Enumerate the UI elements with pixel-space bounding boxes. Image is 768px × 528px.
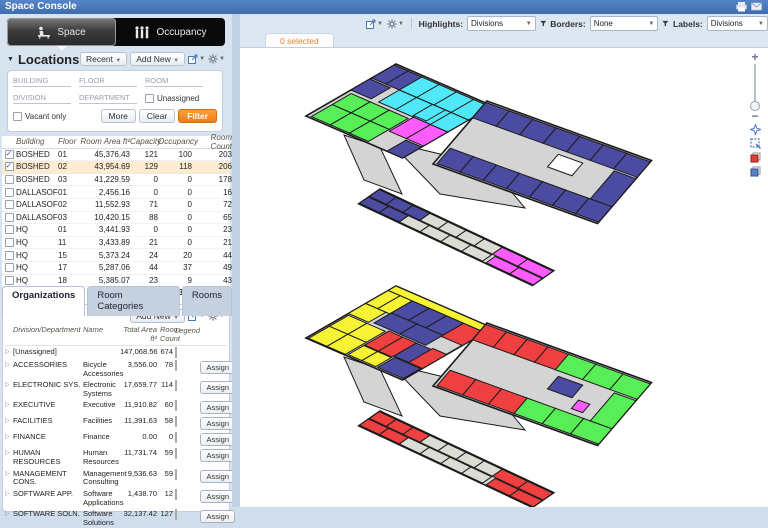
tab-rooms[interactable]: Rooms bbox=[182, 286, 232, 316]
borders-label: Borders: bbox=[550, 19, 585, 29]
collapse-locations-icon[interactable]: ▼ bbox=[7, 56, 14, 63]
location-row[interactable]: BOSHED0341,229.5900178 bbox=[2, 174, 230, 187]
organization-row[interactable]: ▷FACILITIESFacilities11,391.6358Assign bbox=[5, 415, 227, 431]
filter-button[interactable]: Filter bbox=[178, 109, 217, 123]
assign-button[interactable]: Assign bbox=[200, 490, 235, 503]
settings-menu[interactable]: ▼ bbox=[208, 54, 225, 64]
zoom-in-button[interactable]: + bbox=[751, 52, 758, 62]
borders-filter-icon[interactable] bbox=[662, 19, 669, 28]
assign-button[interactable]: Assign bbox=[200, 401, 235, 414]
row-checkbox[interactable] bbox=[5, 263, 14, 272]
row-checkbox[interactable] bbox=[5, 162, 14, 171]
highlights-label: Highlights: bbox=[419, 19, 463, 29]
tab-occupancy[interactable]: Occupancy bbox=[116, 18, 225, 46]
location-row[interactable]: BOSHED0145,376.43121100203 bbox=[2, 149, 230, 162]
tab-organizations[interactable]: Organizations bbox=[2, 286, 85, 316]
labels-label: Labels: bbox=[673, 19, 703, 29]
legend-swatch bbox=[175, 509, 177, 520]
zoom-out-button[interactable]: − bbox=[751, 111, 758, 121]
locations-grid-header: Building Floor Room Area ft² Capacity Oc… bbox=[2, 136, 230, 149]
expand-icon[interactable]: ▷ bbox=[5, 417, 13, 425]
row-checkbox[interactable] bbox=[5, 175, 14, 184]
space-console-app: Space Console Space Occupancy ▼ Location… bbox=[0, 0, 768, 507]
building-input[interactable] bbox=[13, 75, 71, 87]
organization-row[interactable]: ▷HUMAN RESOURCESHuman Resources11,731.74… bbox=[5, 447, 227, 467]
location-row[interactable]: HQ175,287.06443749 bbox=[2, 262, 230, 275]
organizations-panel: Add New ▼ ▼ ▼ Division/Department Name T… bbox=[2, 304, 230, 512]
recent-button[interactable]: Recent ▼ bbox=[80, 52, 127, 66]
organization-row[interactable]: ▷FINANCEFinance0.000Assign bbox=[5, 431, 227, 447]
row-checkbox[interactable] bbox=[5, 150, 14, 159]
app-title: Space Console bbox=[5, 1, 77, 12]
tab-room-categories[interactable]: Room Categories bbox=[87, 286, 180, 316]
panel-splitter[interactable] bbox=[232, 14, 240, 507]
location-row[interactable]: DALLASOF0310,420.1588065 bbox=[2, 212, 230, 225]
organization-row[interactable]: ▷MANAGEMENT CONS.Management Consulting9,… bbox=[5, 468, 227, 488]
expand-icon[interactable]: ▷ bbox=[5, 401, 13, 409]
mail-icon[interactable] bbox=[751, 1, 762, 12]
viewer-settings-menu[interactable]: ▼ bbox=[387, 19, 404, 29]
locations-title: Locations bbox=[18, 52, 79, 67]
locations-grid: Building Floor Room Area ft² Capacity Oc… bbox=[2, 136, 230, 306]
viewer-export-menu[interactable]: ▼ bbox=[366, 19, 383, 29]
add-new-button[interactable]: Add New ▼ bbox=[130, 52, 185, 66]
viewer-toolbar: ▼ ▼ Highlights: Divisions▼ Borders: None… bbox=[240, 14, 768, 33]
tab-occupancy-label: Occupancy bbox=[156, 27, 206, 38]
organization-row[interactable]: ▷SOFTWARE SOLN.Software Solutions32,137.… bbox=[5, 508, 227, 528]
vacant-only-checkbox[interactable] bbox=[13, 112, 22, 121]
selected-count-tab[interactable]: 0 selected bbox=[265, 33, 334, 47]
organization-row[interactable]: ▷ELECTRONIC SYS.Electronic Systems17,659… bbox=[5, 379, 227, 399]
more-button[interactable]: More bbox=[101, 109, 136, 123]
location-filter-panel: Unassigned Vacant only More Clear Filter bbox=[7, 70, 223, 132]
organization-row[interactable]: ▷SOFTWARE APP.Software Applications1,438… bbox=[5, 488, 227, 508]
clear-button[interactable]: Clear bbox=[139, 109, 175, 123]
highlights-select[interactable]: Divisions▼ bbox=[467, 16, 536, 31]
organizations-grid-header: Division/Department Name Total Area ft² … bbox=[5, 324, 227, 346]
legend-swatch bbox=[175, 469, 177, 480]
location-row[interactable]: HQ155,373.24242044 bbox=[2, 249, 230, 262]
assign-button[interactable]: Assign bbox=[200, 433, 235, 446]
expand-icon[interactable]: ▷ bbox=[5, 381, 13, 389]
location-row[interactable]: DALLASOF0211,552.9371072 bbox=[2, 199, 230, 212]
row-checkbox[interactable] bbox=[5, 251, 14, 260]
row-checkbox[interactable] bbox=[5, 200, 14, 209]
assign-button[interactable]: Assign bbox=[200, 381, 235, 394]
expand-icon[interactable]: ▷ bbox=[5, 490, 13, 498]
select-window-icon[interactable] bbox=[750, 138, 761, 149]
left-panel: Space Occupancy ▼ Locations Recent ▼ Add… bbox=[0, 14, 232, 507]
floor-input[interactable] bbox=[79, 75, 137, 87]
legend-swatch bbox=[175, 448, 177, 459]
location-row[interactable]: HQ113,433.8921021 bbox=[2, 237, 230, 250]
assign-button[interactable]: Assign bbox=[200, 361, 235, 374]
legend-swatch bbox=[175, 432, 177, 443]
location-row[interactable]: DALLASOF012,456.160016 bbox=[2, 186, 230, 199]
viewer-panel: ▼ ▼ Highlights: Divisions▼ Borders: None… bbox=[240, 14, 768, 507]
copy-layers-icon[interactable] bbox=[750, 166, 761, 177]
expand-icon[interactable]: ▷ bbox=[5, 449, 13, 457]
legend-swatch bbox=[175, 380, 177, 391]
unassigned-checkbox[interactable] bbox=[145, 94, 154, 103]
occupancy-people-icon bbox=[134, 26, 150, 39]
tab-space-label: Space bbox=[57, 27, 85, 38]
location-row[interactable]: HQ013,441.930023 bbox=[2, 224, 230, 237]
room-input[interactable] bbox=[145, 75, 203, 87]
row-checkbox[interactable] bbox=[5, 188, 14, 197]
unassigned-label: Unassigned bbox=[157, 94, 199, 103]
space-desk-icon bbox=[37, 26, 51, 39]
bottom-tabs: Organizations Room Categories Rooms bbox=[2, 286, 232, 316]
export-menu[interactable]: ▼ bbox=[188, 54, 205, 64]
organization-row[interactable]: ▷[Unassigned]147,068.56674 bbox=[5, 346, 227, 359]
print-icon[interactable] bbox=[736, 1, 747, 12]
zoom-slider[interactable] bbox=[754, 64, 756, 106]
labels-select[interactable]: Divisions▼ bbox=[707, 16, 768, 31]
zoom-extents-icon[interactable] bbox=[750, 124, 761, 135]
assign-button[interactable]: Assign bbox=[200, 470, 235, 483]
highlights-filter-icon[interactable] bbox=[540, 19, 547, 28]
organization-row[interactable]: ▷EXECUTIVEExecutive11,910.8260Assign bbox=[5, 399, 227, 415]
assign-button[interactable]: Assign bbox=[200, 417, 235, 430]
row-checkbox[interactable] bbox=[5, 225, 14, 234]
expand-icon[interactable]: ▷ bbox=[5, 510, 13, 518]
assign-button[interactable]: Assign bbox=[200, 510, 235, 523]
location-row[interactable]: BOSHED0243,954.69129118206 bbox=[2, 161, 230, 174]
expand-icon[interactable]: ▷ bbox=[5, 361, 13, 369]
borders-select[interactable]: None▼ bbox=[590, 16, 659, 31]
floorplan-canvas[interactable]: + − bbox=[240, 47, 768, 507]
app-title-bar: Space Console bbox=[0, 0, 768, 14]
row-checkbox[interactable] bbox=[5, 238, 14, 247]
gear-icon bbox=[387, 19, 397, 29]
floorplan-drawing bbox=[240, 48, 768, 507]
export-icon bbox=[188, 54, 198, 64]
department-input[interactable] bbox=[79, 92, 137, 104]
expand-icon[interactable]: ▷ bbox=[5, 470, 13, 478]
organization-row[interactable]: ▷ACCESSORIESBicycle Accessories3,556.007… bbox=[5, 359, 227, 379]
expand-icon[interactable]: ▷ bbox=[5, 433, 13, 441]
legend-swatch bbox=[175, 360, 177, 371]
vacant-only-label: Vacant only bbox=[25, 112, 66, 121]
expand-icon[interactable]: ▷ bbox=[5, 348, 13, 356]
export-icon bbox=[366, 19, 376, 29]
gear-icon bbox=[208, 54, 218, 64]
row-checkbox[interactable] bbox=[5, 276, 14, 285]
legend-swatch bbox=[175, 489, 177, 500]
division-input[interactable] bbox=[13, 92, 71, 104]
tab-space[interactable]: Space bbox=[7, 18, 116, 46]
map-controls: + − bbox=[747, 52, 763, 177]
main-tabs: Space Occupancy bbox=[7, 18, 225, 46]
legend-swatch bbox=[175, 347, 177, 358]
row-checkbox[interactable] bbox=[5, 213, 14, 222]
legend-swatch bbox=[175, 416, 177, 427]
legend-swatch bbox=[175, 400, 177, 411]
clear-selection-icon[interactable] bbox=[750, 152, 761, 163]
assign-button[interactable]: Assign bbox=[200, 449, 235, 462]
